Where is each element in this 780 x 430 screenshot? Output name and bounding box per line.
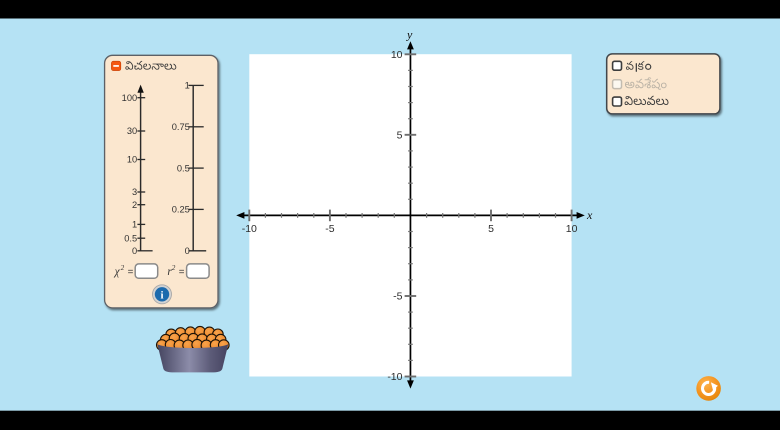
svg-text:y: y [406,28,413,42]
svg-text:5: 5 [488,223,494,235]
svg-text:x: x [586,208,593,222]
svg-text:5: 5 [397,129,403,141]
svg-text:-10: -10 [387,371,402,383]
svg-text:=: = [179,267,185,278]
svg-text:1: 1 [185,81,190,91]
svg-text:0: 0 [132,246,137,256]
svg-text:=: = [128,267,134,278]
svg-text:100: 100 [122,93,138,103]
svg-text:10: 10 [391,49,403,61]
svg-text:30: 30 [127,126,137,136]
svg-text:0.25: 0.25 [172,205,190,215]
svg-text:-5: -5 [325,223,334,235]
svg-text:2: 2 [121,264,125,272]
svg-text:2: 2 [132,200,137,210]
svg-text:10: 10 [566,223,578,235]
svg-text:3: 3 [132,187,137,197]
svg-text:i: i [160,289,163,301]
svg-text:0.5: 0.5 [177,163,190,173]
svg-text:0.75: 0.75 [172,122,190,132]
svg-text:0.5: 0.5 [124,233,137,243]
svg-text:-5: -5 [393,291,402,303]
svg-text:-10: -10 [242,223,257,235]
svg-text:χ: χ [114,266,121,278]
svg-text:2: 2 [172,264,176,272]
svg-text:10: 10 [127,155,137,165]
svg-text:1: 1 [132,220,137,230]
svg-text:0: 0 [185,246,190,256]
